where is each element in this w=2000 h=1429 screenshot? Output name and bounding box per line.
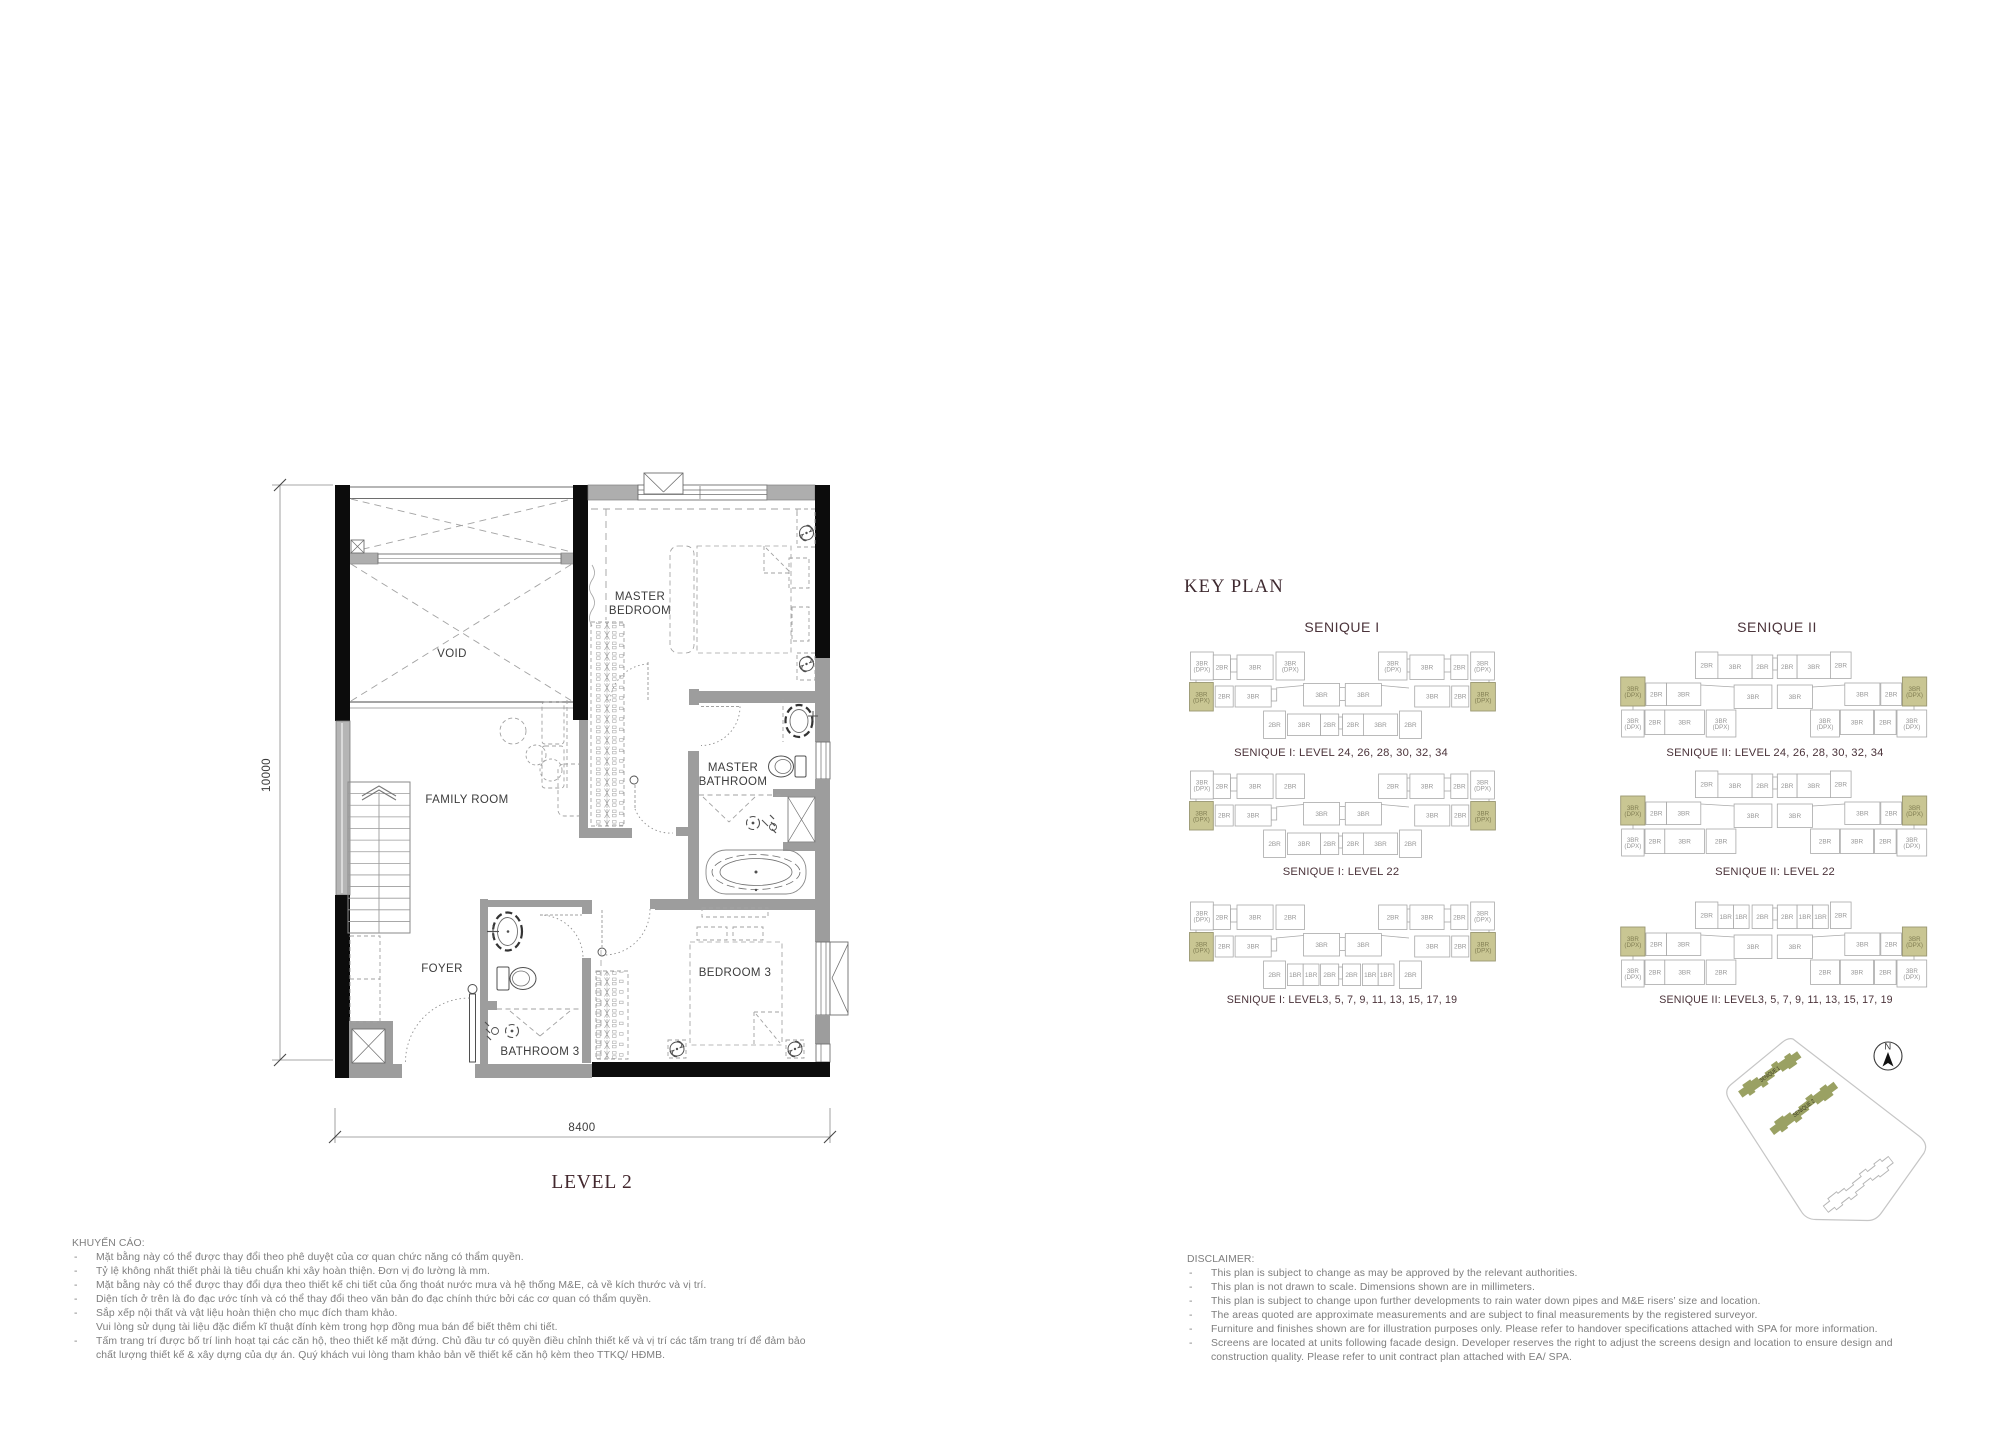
svg-text:(DPX): (DPX) (1193, 816, 1210, 823)
svg-text:SENIQUE II: LEVEL3, 5, 7, 9, 1: SENIQUE II: LEVEL3, 5, 7, 9, 11, 13, 15,… (1659, 994, 1893, 1006)
svg-text:2BR: 2BR (1700, 662, 1713, 669)
svg-text:3BR: 3BR (1315, 692, 1328, 699)
svg-text:SENIQUE I: SENIQUE I (1304, 619, 1379, 635)
svg-text:(DPX): (DPX) (1624, 811, 1641, 818)
svg-text:8400: 8400 (568, 1122, 595, 1134)
svg-text:3BR: 3BR (1678, 838, 1691, 845)
svg-text:2BR: 2BR (1284, 914, 1297, 921)
svg-text:2BR: 2BR (1885, 691, 1898, 698)
svg-text:2BR: 2BR (1268, 841, 1281, 848)
svg-text:(DPX): (DPX) (1193, 667, 1210, 674)
svg-text:2BR: 2BR (1700, 781, 1713, 788)
svg-text:2BR: 2BR (1756, 664, 1769, 671)
svg-text:(DPX): (DPX) (1624, 724, 1641, 731)
svg-text:3BR: 3BR (1808, 783, 1821, 790)
svg-text:3BR: 3BR (1747, 813, 1760, 820)
svg-text:2BR: 2BR (1879, 719, 1892, 726)
svg-text:3BR: 3BR (1249, 664, 1262, 671)
svg-text:3BR: 3BR (1247, 813, 1260, 820)
svg-text:2BR: 2BR (1715, 838, 1728, 845)
svg-text:(DPX): (DPX) (1906, 811, 1923, 818)
svg-text:3BR: 3BR (1426, 944, 1439, 951)
svg-text:(DPX): (DPX) (1903, 843, 1920, 850)
svg-text:(DPX): (DPX) (1713, 724, 1730, 731)
svg-text:2BR: 2BR (1756, 783, 1769, 790)
svg-text:2BR: 2BR (1387, 783, 1400, 790)
svg-text:(DPX): (DPX) (1903, 724, 1920, 731)
svg-text:2BR: 2BR (1216, 664, 1229, 671)
svg-text:3BR: 3BR (1677, 941, 1690, 948)
svg-text:2BR: 2BR (1347, 841, 1360, 848)
svg-text:2BR: 2BR (1323, 841, 1336, 848)
svg-text:2BR: 2BR (1885, 810, 1898, 817)
svg-text:SENIQUE II: LEVEL 22: SENIQUE II: LEVEL 22 (1715, 866, 1835, 878)
svg-text:2BR: 2BR (1453, 914, 1466, 921)
svg-text:3BR: 3BR (1729, 664, 1742, 671)
svg-text:3BR: 3BR (1789, 813, 1802, 820)
svg-text:2BR: 2BR (1649, 719, 1662, 726)
svg-text:3BR: 3BR (1856, 941, 1869, 948)
svg-text:(DPX): (DPX) (1474, 667, 1491, 674)
svg-text:(DPX): (DPX) (1193, 947, 1210, 954)
svg-text:3BR: 3BR (1808, 664, 1821, 671)
svg-text:2BR: 2BR (1835, 781, 1848, 788)
svg-text:3BR: 3BR (1747, 944, 1760, 951)
svg-text:2BR: 2BR (1404, 972, 1417, 979)
svg-text:2BR: 2BR (1268, 722, 1281, 729)
svg-text:2BR: 2BR (1781, 783, 1794, 790)
svg-text:1BR: 1BR (1799, 914, 1812, 921)
svg-text:3BR: 3BR (1357, 692, 1370, 699)
svg-text:3BR: 3BR (1298, 722, 1311, 729)
svg-text:3BR: 3BR (1247, 944, 1260, 951)
svg-text:3BR: 3BR (1856, 810, 1869, 817)
svg-text:3BR: 3BR (1678, 969, 1691, 976)
svg-text:2BR: 2BR (1454, 944, 1467, 951)
svg-text:3BR: 3BR (1421, 664, 1434, 671)
svg-text:3BR: 3BR (1315, 811, 1328, 818)
svg-text:2BR: 2BR (1781, 664, 1794, 671)
svg-text:SENIQUE II: LEVEL 24, 26, 28,: SENIQUE II: LEVEL 24, 26, 28, 30, 32, 34 (1666, 747, 1883, 759)
svg-text:2BR: 2BR (1879, 838, 1892, 845)
svg-text:2BR: 2BR (1700, 912, 1713, 919)
svg-text:BATHROOM 3: BATHROOM 3 (500, 1046, 579, 1058)
svg-text:2BR: 2BR (1819, 969, 1832, 976)
svg-text:3BR: 3BR (1677, 691, 1690, 698)
svg-text:3BR: 3BR (1851, 838, 1864, 845)
svg-text:3BR: 3BR (1856, 691, 1869, 698)
svg-text:2BR: 2BR (1454, 813, 1467, 820)
svg-text:(DPX): (DPX) (1624, 843, 1641, 850)
svg-text:3BR: 3BR (1249, 783, 1262, 790)
svg-text:1BR: 1BR (1305, 972, 1318, 979)
svg-text:SENIQUE I: LEVEL3, 5, 7, 9, 11: SENIQUE I: LEVEL3, 5, 7, 9, 11, 13, 15, … (1227, 994, 1457, 1006)
svg-text:2BR: 2BR (1756, 914, 1769, 921)
svg-text:2BR: 2BR (1649, 969, 1662, 976)
svg-text:1BR: 1BR (1380, 972, 1393, 979)
svg-text:2BR: 2BR (1387, 914, 1400, 921)
svg-text:2BR: 2BR (1454, 694, 1467, 701)
svg-text:2BR: 2BR (1284, 783, 1297, 790)
svg-text:3BR: 3BR (1678, 719, 1691, 726)
svg-text:1BR: 1BR (1735, 914, 1748, 921)
svg-text:(DPX): (DPX) (1193, 786, 1210, 793)
svg-text:3BR: 3BR (1789, 694, 1802, 701)
svg-text:(DPX): (DPX) (1475, 816, 1492, 823)
svg-text:(DPX): (DPX) (1475, 947, 1492, 954)
svg-text:2BR: 2BR (1650, 810, 1663, 817)
svg-text:3BR: 3BR (1851, 969, 1864, 976)
svg-text:VOID: VOID (437, 648, 467, 660)
svg-text:(DPX): (DPX) (1384, 667, 1401, 674)
svg-text:2BR: 2BR (1323, 722, 1336, 729)
svg-text:3BR: 3BR (1249, 914, 1262, 921)
svg-text:3BR: 3BR (1247, 694, 1260, 701)
svg-text:3BR: 3BR (1298, 841, 1311, 848)
svg-text:2BR: 2BR (1781, 914, 1794, 921)
svg-text:(DPX): (DPX) (1193, 917, 1210, 924)
svg-text:BATHROOM: BATHROOM (699, 776, 768, 788)
svg-text:MASTER: MASTER (615, 591, 665, 603)
svg-text:BEDROOM: BEDROOM (609, 605, 671, 617)
svg-text:3BR: 3BR (1357, 942, 1370, 949)
svg-text:2BR: 2BR (1345, 972, 1358, 979)
svg-text:2BR: 2BR (1404, 722, 1417, 729)
svg-text:3BR: 3BR (1851, 719, 1864, 726)
svg-text:2BR: 2BR (1879, 969, 1892, 976)
svg-text:3BR: 3BR (1357, 811, 1370, 818)
svg-text:2BR: 2BR (1453, 783, 1466, 790)
svg-text:(DPX): (DPX) (1474, 786, 1491, 793)
svg-text:KEY PLAN: KEY PLAN (1184, 577, 1284, 597)
svg-text:BEDROOM 3: BEDROOM 3 (699, 967, 772, 979)
svg-text:3BR: 3BR (1677, 810, 1690, 817)
svg-text:3BR: 3BR (1421, 783, 1434, 790)
svg-text:3BR: 3BR (1426, 813, 1439, 820)
svg-text:(DPX): (DPX) (1903, 974, 1920, 981)
svg-text:1BR: 1BR (1364, 972, 1377, 979)
svg-text:2BR: 2BR (1715, 969, 1728, 976)
svg-text:2BR: 2BR (1650, 691, 1663, 698)
svg-text:(DPX): (DPX) (1624, 942, 1641, 949)
svg-text:(DPX): (DPX) (1624, 692, 1641, 699)
svg-text:(DPX): (DPX) (1474, 917, 1491, 924)
svg-text:3BR: 3BR (1789, 944, 1802, 951)
svg-text:2BR: 2BR (1216, 914, 1229, 921)
svg-text:(DPX): (DPX) (1475, 697, 1492, 704)
svg-text:(DPX): (DPX) (1624, 974, 1641, 981)
svg-text:3BR: 3BR (1747, 694, 1760, 701)
svg-text:2BR: 2BR (1216, 783, 1229, 790)
svg-text:(DPX): (DPX) (1906, 692, 1923, 699)
svg-text:SENIQUE I: LEVEL 24, 26, 28, 3: SENIQUE I: LEVEL 24, 26, 28, 30, 32, 34 (1234, 747, 1448, 759)
svg-text:MASTER: MASTER (708, 762, 758, 774)
svg-text:10000: 10000 (261, 758, 273, 792)
svg-text:N: N (1884, 1042, 1891, 1053)
svg-text:2BR: 2BR (1268, 972, 1281, 979)
svg-text:2BR: 2BR (1347, 722, 1360, 729)
svg-text:(DPX): (DPX) (1193, 697, 1210, 704)
svg-text:(DPX): (DPX) (1817, 724, 1834, 731)
svg-text:(DPX): (DPX) (1906, 942, 1923, 949)
svg-text:3BR: 3BR (1374, 722, 1387, 729)
svg-text:(DPX): (DPX) (1282, 667, 1299, 674)
svg-text:2BR: 2BR (1218, 944, 1231, 951)
svg-text:2BR: 2BR (1885, 941, 1898, 948)
svg-text:2BR: 2BR (1218, 694, 1231, 701)
svg-text:LEVEL 2: LEVEL 2 (551, 1172, 632, 1193)
svg-text:3BR: 3BR (1426, 694, 1439, 701)
svg-text:2BR: 2BR (1323, 972, 1336, 979)
svg-text:3BR: 3BR (1315, 942, 1328, 949)
svg-text:2BR: 2BR (1835, 662, 1848, 669)
svg-text:2BR: 2BR (1453, 664, 1466, 671)
svg-text:1BR: 1BR (1814, 914, 1827, 921)
svg-text:2BR: 2BR (1835, 912, 1848, 919)
svg-text:1BR: 1BR (1719, 914, 1732, 921)
svg-text:SENIQUE II: SENIQUE II (1737, 619, 1817, 635)
svg-text:3BR: 3BR (1374, 841, 1387, 848)
svg-text:2BR: 2BR (1218, 813, 1231, 820)
svg-text:FAMILY ROOM: FAMILY ROOM (425, 794, 508, 806)
svg-text:2BR: 2BR (1819, 838, 1832, 845)
svg-text:3BR: 3BR (1421, 914, 1434, 921)
svg-text:2BR: 2BR (1404, 841, 1417, 848)
svg-text:SENIQUE I: LEVEL 22: SENIQUE I: LEVEL 22 (1283, 866, 1400, 878)
svg-text:3BR: 3BR (1729, 783, 1742, 790)
svg-text:1BR: 1BR (1289, 972, 1302, 979)
svg-text:FOYER: FOYER (421, 963, 463, 975)
svg-text:2BR: 2BR (1649, 838, 1662, 845)
svg-text:2BR: 2BR (1650, 941, 1663, 948)
